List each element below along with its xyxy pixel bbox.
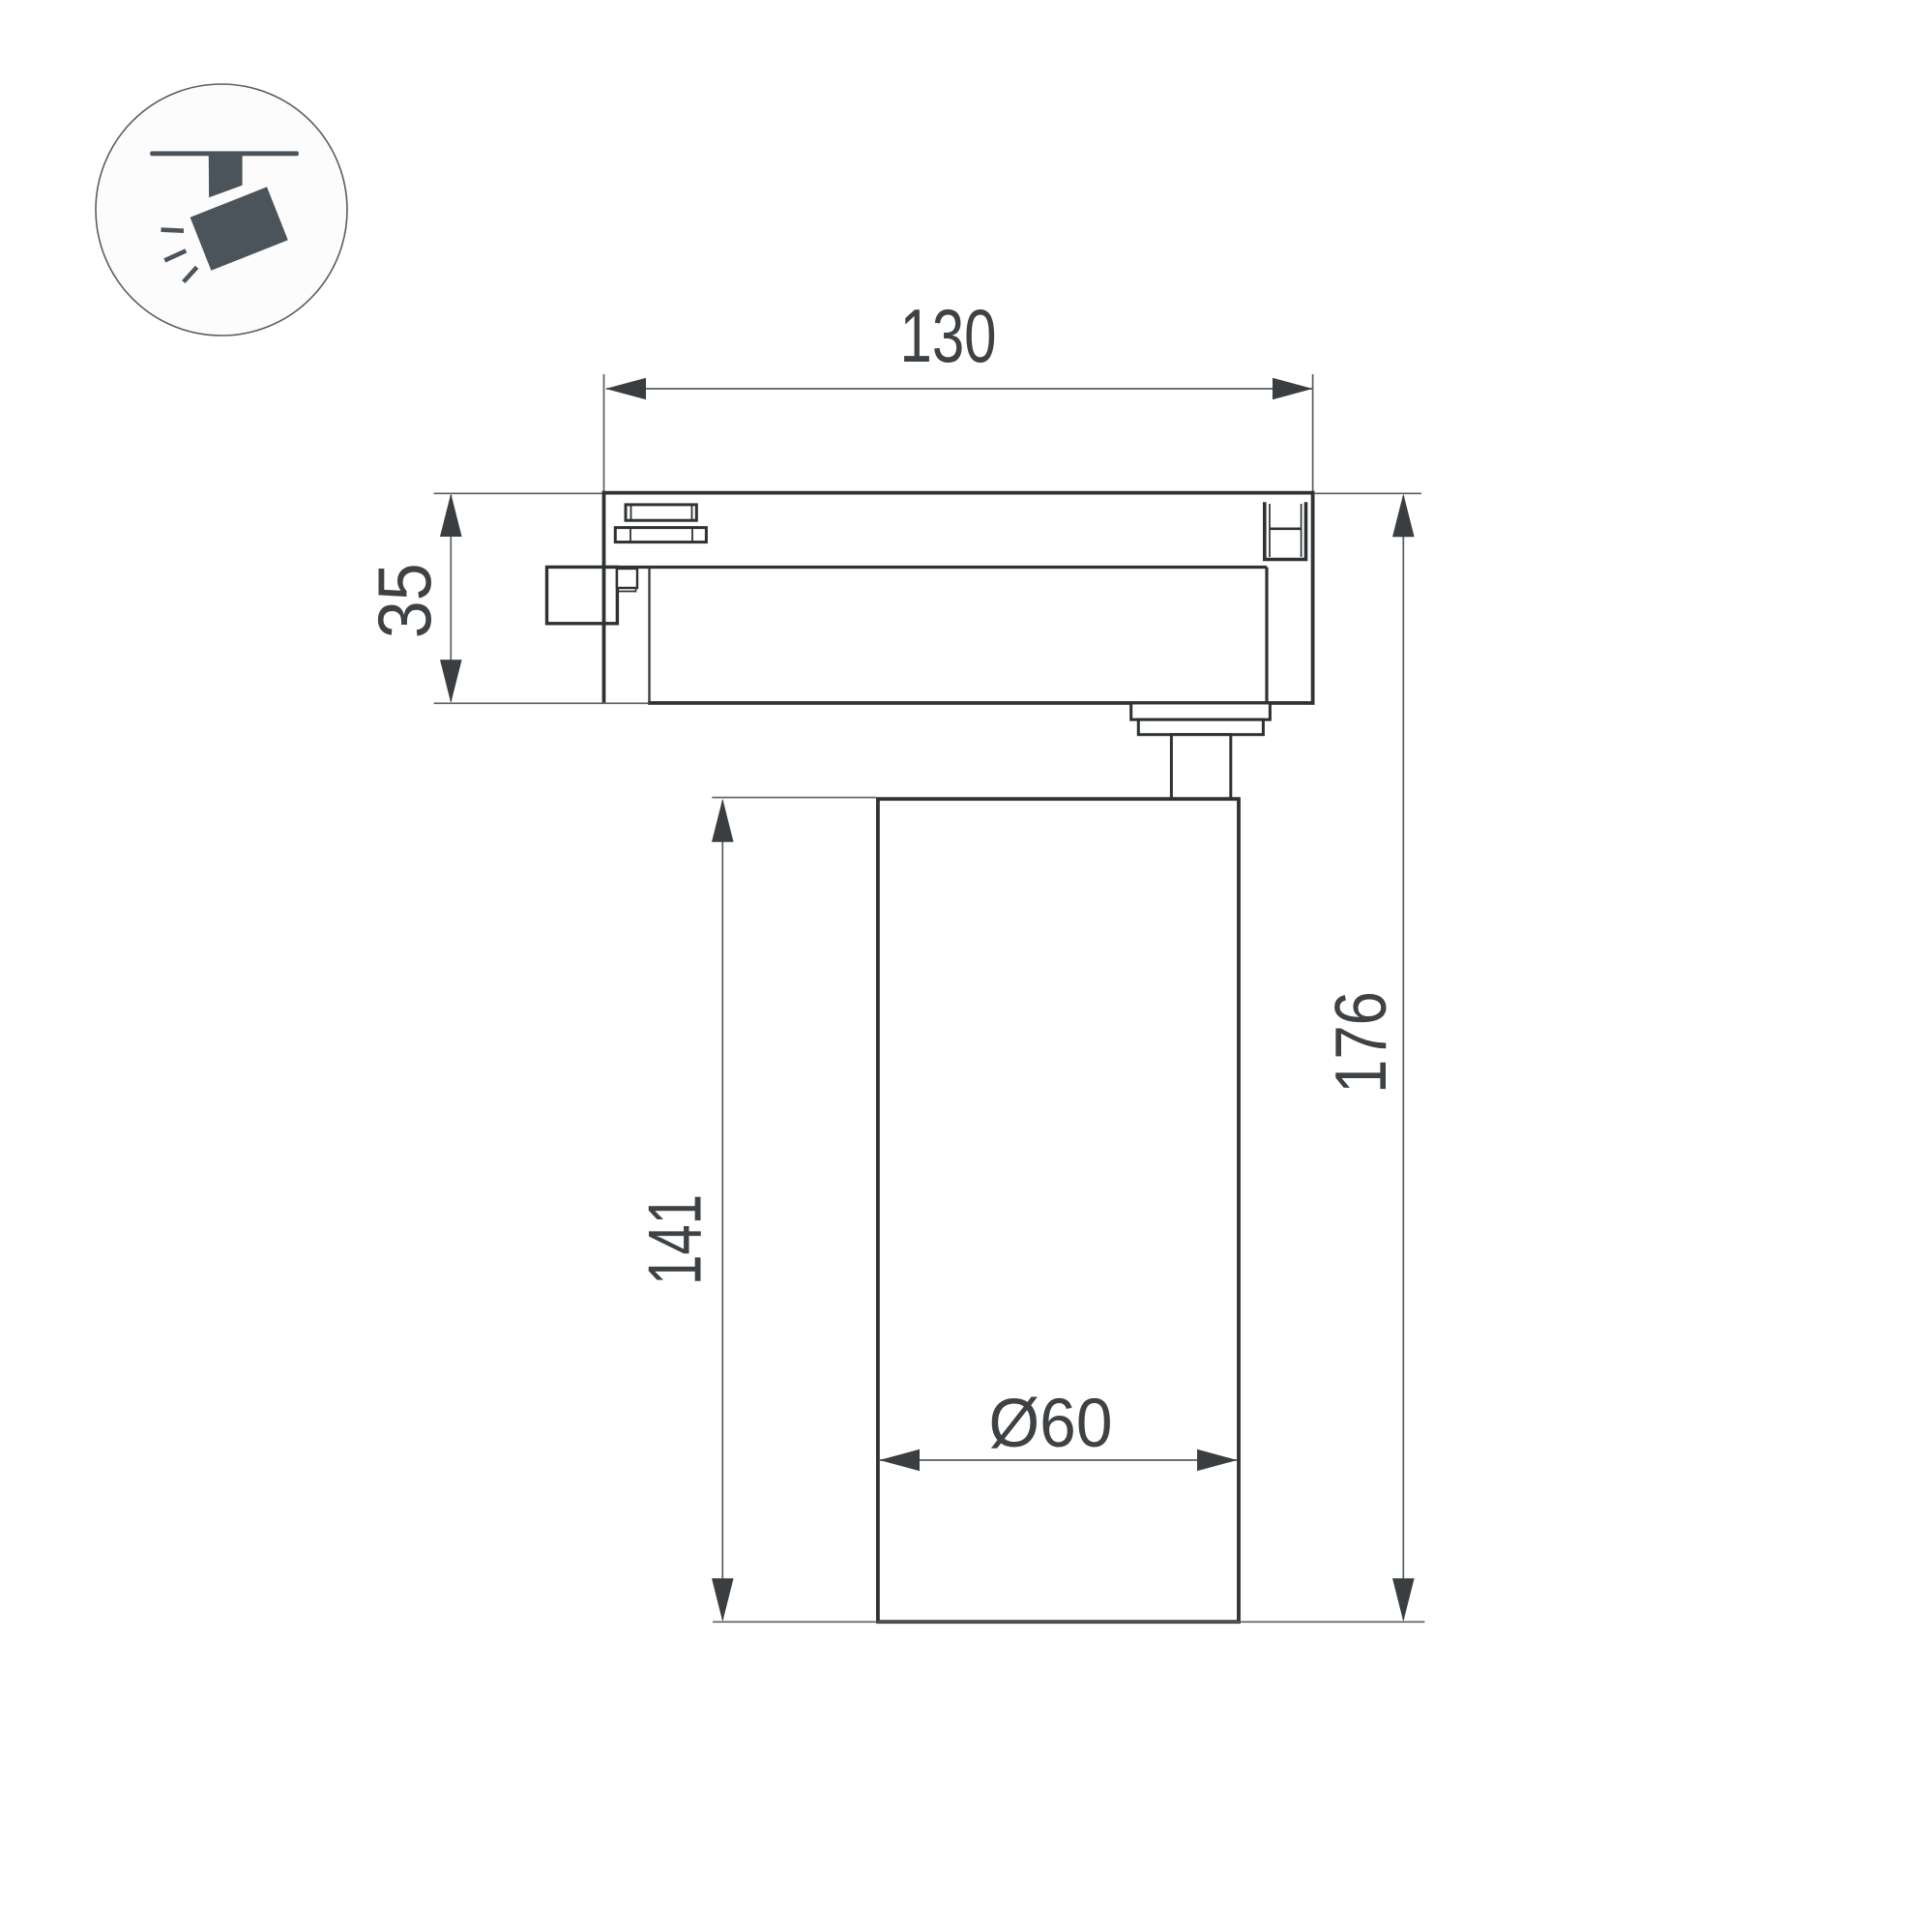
svg-text:130: 130 bbox=[900, 293, 997, 378]
svg-text:141: 141 bbox=[632, 1194, 717, 1285]
svg-text:35: 35 bbox=[362, 563, 447, 638]
svg-text:Ø60: Ø60 bbox=[989, 1386, 1113, 1462]
svg-text:176: 176 bbox=[1320, 991, 1401, 1094]
